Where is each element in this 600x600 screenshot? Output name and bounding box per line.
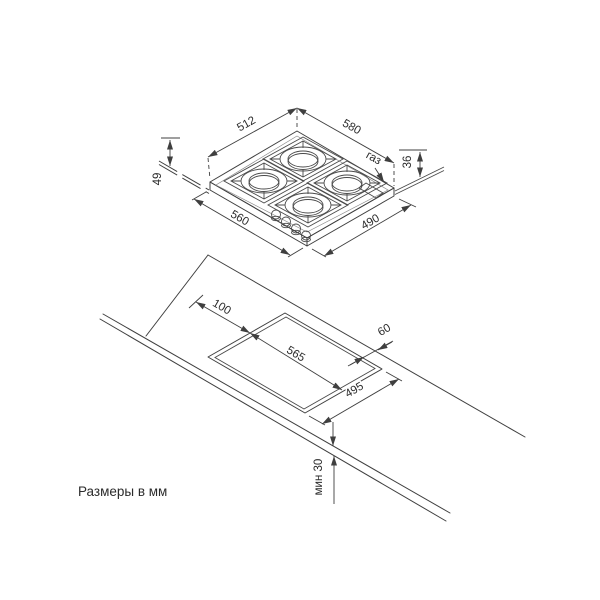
units-note: Размеры в мм [78,484,167,499]
cutout-dimensions: 100 565 60 495 мин 30 [189,295,402,504]
worktop-edge-left [159,161,209,194]
dimension-490: 490 [312,199,416,257]
dimension-512: 512 [208,108,297,157]
hob-dimension-diagram: 512 580 560 490 49 36 газ [0,0,600,600]
dim-min-30-label: мин 30 [313,459,325,496]
dimension-49: 49 [152,138,180,185]
control-knob [272,210,281,221]
hob-isometric-view [159,131,444,246]
worktop-left-cut-edge [146,255,208,336]
dim-49-label: 49 [152,173,164,186]
dimension-560: 560 [192,192,303,257]
dim-495-label: 495 [343,380,366,400]
cutout-outer-outline [208,313,382,413]
gas-label: газ [364,149,383,167]
dimension-drawing-page: 512 580 560 490 49 36 газ [0,0,600,600]
dimension-100: 100 [189,295,250,333]
dimension-36: 36 [399,150,427,177]
worktop-edge-right [395,167,444,195]
dimension-min-30: мин 30 [313,422,334,504]
hob-front-right-face [307,188,394,246]
dim-60-label: 60 [376,322,393,339]
dim-100-label: 100 [210,297,233,317]
dim-36-label: 36 [402,156,414,169]
dimension-60: 60 [348,322,393,366]
dim-490-label: 490 [359,212,382,232]
control-knob [282,217,291,228]
